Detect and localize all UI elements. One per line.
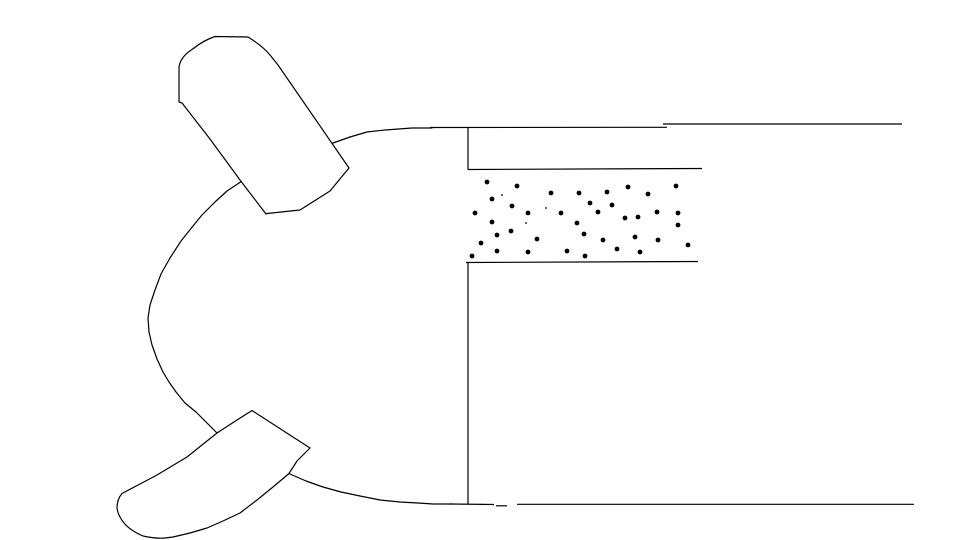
stipple-dot [638, 250, 643, 255]
stipple-dot [646, 192, 651, 197]
stipple-dot [473, 211, 478, 216]
stipple-dot [479, 241, 484, 246]
stipple-dot [655, 210, 660, 215]
stipple-dot [610, 203, 615, 208]
stipple-dot [490, 220, 495, 225]
machine-line-drawing [0, 0, 960, 540]
stipple-dot [495, 233, 500, 238]
stipple-dot [623, 216, 628, 221]
stipple-dot [656, 238, 661, 243]
paper-background [0, 0, 960, 540]
bottom-wall-line-left [450, 504, 494, 505]
stipple-dot [490, 197, 495, 202]
stipple-dot [615, 247, 620, 252]
stipple-dot [515, 184, 520, 189]
stipple-dot [583, 254, 588, 259]
stipple-speck [525, 222, 527, 224]
stipple-dot [626, 185, 631, 190]
stipple-dot [577, 191, 582, 196]
stipple-dot [470, 254, 475, 259]
stipple-dot [535, 237, 540, 242]
stipple-speck [501, 194, 503, 196]
stipple-dot [509, 229, 514, 234]
stipple-dot [495, 249, 500, 254]
stipple-dot [596, 210, 601, 215]
stipple-dot [633, 235, 638, 240]
stipple-dot [549, 191, 554, 196]
stipple-dot [676, 223, 681, 228]
stipple-dot [575, 221, 580, 226]
stipple-dot [526, 250, 531, 255]
stipple-dot [526, 211, 531, 216]
stipple-dot [686, 243, 691, 248]
stipple-dot [510, 204, 515, 209]
stipple-dot [565, 249, 570, 254]
stipple-dot [601, 238, 606, 243]
drawing-page [0, 0, 960, 540]
stipple-dot [636, 215, 641, 220]
stipple-dot [674, 184, 679, 189]
stipple-dot [582, 232, 587, 237]
stipple-dot [605, 190, 610, 195]
stipple-dot [559, 211, 564, 216]
stipple-dot [676, 211, 681, 216]
stipple-speck [545, 207, 547, 209]
stipple-dot [588, 201, 593, 206]
stipple-dot [485, 180, 490, 185]
